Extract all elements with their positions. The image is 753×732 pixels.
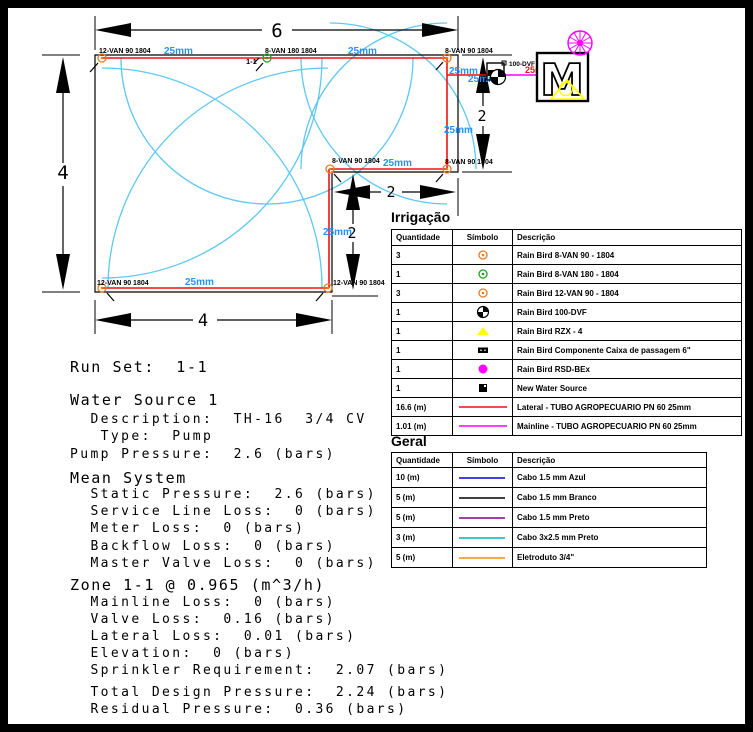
mean-system-heading: Mean System	[70, 469, 187, 487]
table-row: 1 Rain Bird 100-DVF	[392, 303, 741, 322]
nozzle-orange-icon	[453, 284, 513, 302]
svg-text:12-VAN 90 1804: 12-VAN 90 1804	[99, 48, 151, 55]
qty-cell: 3	[392, 246, 453, 264]
report-line: Description: TH-16 3/4 CV	[70, 412, 367, 427]
qty-cell: 5 (m)	[392, 548, 453, 567]
svg-text:25mm: 25mm	[164, 46, 193, 57]
report-line: Mainline Loss: 0 (bars)	[70, 595, 336, 610]
qty-cell: 3 (m)	[392, 528, 453, 547]
water-source-icon	[453, 379, 513, 397]
header-descricao: Descrição	[513, 453, 706, 467]
table-row: 3 (m) Cabo 3x2.5 mm Preto	[392, 528, 706, 548]
qty-cell: 1	[392, 341, 453, 359]
table-row: 1.01 (m) Mainline - TUBO AGROPECUARIO PN…	[392, 417, 741, 435]
dim-height-left: 4	[57, 162, 68, 184]
svg-text:25mm: 25mm	[444, 125, 473, 136]
pass-box-icon	[453, 341, 513, 359]
desc-cell: Rain Bird 100-DVF	[513, 303, 741, 321]
svg-text:25mm: 25mm	[348, 46, 377, 57]
svg-text:12-VAN 90 1804: 12-VAN 90 1804	[333, 280, 385, 287]
svg-text:8-VAN 90 1804: 8-VAN 90 1804	[445, 48, 493, 55]
svg-text:25mm: 25mm	[323, 227, 352, 238]
table-row: 5 (m) Cabo 1.5 mm Preto	[392, 508, 706, 528]
qty-cell: 10 (m)	[392, 468, 453, 487]
dim-height-right: 2	[477, 107, 486, 125]
report-line: Master Valve Loss: 0 (bars)	[70, 556, 377, 571]
nozzle-green-icon	[453, 265, 513, 283]
water-meter-box: M	[537, 53, 588, 106]
table-header-row: Quantidade Símbolo Descrição	[392, 453, 706, 468]
irrigacao-table: Quantidade Símbolo Descrição 3 Rain Bird…	[391, 229, 742, 436]
table-row: 1 Rain Bird RZX - 4	[392, 322, 741, 341]
desc-cell: Rain Bird Componente Caixa de passagem 6…	[513, 341, 741, 359]
desc-cell: Cabo 3x2.5 mm Preto	[513, 528, 706, 547]
nozzle-orange-icon	[453, 246, 513, 264]
cable-blue-line-icon	[453, 468, 513, 487]
qty-cell: 1	[392, 360, 453, 378]
table-row: 10 (m) Cabo 1.5 mm Azul	[392, 468, 706, 488]
header-simbolo: Símbolo	[453, 230, 513, 245]
qty-cell: 16.6 (m)	[392, 398, 453, 416]
table-row: 1 New Water Source	[392, 379, 741, 398]
header-quantidade: Quantidade	[392, 230, 453, 245]
svg-text:8-VAN 180 1804: 8-VAN 180 1804	[265, 48, 317, 55]
desc-cell: Rain Bird RZX - 4	[513, 322, 741, 340]
desc-cell: Lateral - TUBO AGROPECUARIO PN 60 25mm	[513, 398, 741, 416]
table-row: 1 Rain Bird RSD-BEx	[392, 360, 741, 379]
table-row: 3 Rain Bird 8-VAN 90 - 1804	[392, 246, 741, 265]
report-line: Backflow Loss: 0 (bars)	[70, 539, 336, 554]
header-simbolo: Símbolo	[453, 453, 513, 467]
geral-table: Quantidade Símbolo Descrição 10 (m) Cabo…	[391, 452, 707, 568]
desc-cell: Mainline - TUBO AGROPECUARIO PN 60 25mm	[513, 417, 741, 435]
svg-text:8-VAN 90 1804: 8-VAN 90 1804	[332, 158, 380, 165]
svg-text:25mm: 25mm	[383, 158, 412, 169]
cable-cyan-line-icon	[453, 528, 513, 547]
qty-cell: 5 (m)	[392, 508, 453, 527]
irrigacao-table-title: Irrigação	[391, 209, 450, 225]
report-line: Static Pressure: 2.6 (bars)	[70, 487, 377, 502]
qty-cell: 1	[392, 265, 453, 283]
report-line: Service Line Loss: 0 (bars)	[70, 504, 377, 519]
drawing-sheet: 6 4 4 2 2 2	[0, 0, 753, 732]
controller-triangle-icon	[453, 322, 513, 340]
qty-cell: 1	[392, 379, 453, 397]
table-row: 3 Rain Bird 12-VAN 90 - 1804	[392, 284, 741, 303]
report-line: Residual Pressure: 0.36 (bars)	[70, 702, 407, 717]
table-header-row: Quantidade Símbolo Descrição	[392, 230, 741, 246]
rain-sensor-icon	[568, 31, 592, 55]
table-row: 5 (m) Eletroduto 3/4"	[392, 548, 706, 567]
table-row: 5 (m) Cabo 1.5 mm Branco	[392, 488, 706, 508]
dim-notch-width: 2	[386, 183, 395, 201]
svg-text:8-VAN 90 1804: 8-VAN 90 1804	[445, 159, 493, 166]
desc-cell: Cabo 1.5 mm Azul	[513, 468, 706, 487]
table-row: 1 Rain Bird Componente Caixa de passagem…	[392, 341, 741, 360]
water-source-heading: Water Source 1	[70, 391, 219, 409]
desc-cell: Cabo 1.5 mm Branco	[513, 488, 706, 507]
svg-text:12-VAN 90 1804: 12-VAN 90 1804	[97, 280, 149, 287]
report-line: Meter Loss: 0 (bars)	[70, 521, 305, 536]
mainline-line-icon	[453, 417, 513, 435]
valve-label: 100-DVF	[509, 61, 535, 68]
desc-cell: Rain Bird 8-VAN 90 - 1804	[513, 246, 741, 264]
zone-callout: 1-1	[246, 57, 257, 66]
table-row: 1 Rain Bird 8-VAN 180 - 1804	[392, 265, 741, 284]
cable-purple-line-icon	[453, 508, 513, 527]
dim-width-bottom: 4	[198, 311, 208, 331]
valve-dvf-icon	[453, 303, 513, 321]
valve-dvf-icon	[491, 70, 506, 85]
qty-cell: 1	[392, 322, 453, 340]
desc-cell: Cabo 1.5 mm Preto	[513, 508, 706, 527]
desc-cell: Rain Bird RSD-BEx	[513, 360, 741, 378]
report-line: Elevation: 0 (bars)	[70, 646, 295, 661]
qty-cell: 1	[392, 303, 453, 321]
cable-white-line-icon	[453, 488, 513, 507]
qty-cell: 3	[392, 284, 453, 302]
report-line: Valve Loss: 0.16 (bars)	[70, 612, 336, 627]
qty-cell: 5 (m)	[392, 488, 453, 507]
desc-cell: New Water Source	[513, 379, 741, 397]
rain-sensor-icon	[453, 360, 513, 378]
desc-cell: Rain Bird 8-VAN 180 - 1804	[513, 265, 741, 283]
run-set-line: Run Set: 1-1	[70, 358, 208, 376]
report-line: Type: Pump	[70, 429, 213, 444]
desc-cell: Eletroduto 3/4"	[513, 548, 706, 567]
desc-cell: Rain Bird 12-VAN 90 - 1804	[513, 284, 741, 302]
lateral-line-icon	[453, 398, 513, 416]
report-line: Total Design Pressure: 2.24 (bars)	[70, 685, 448, 700]
dim-width-top: 6	[271, 20, 282, 42]
report-line: Pump Pressure: 2.6 (bars)	[70, 447, 336, 462]
header-quantidade: Quantidade	[392, 453, 453, 467]
geral-table-title: Geral	[391, 433, 427, 449]
zone-heading: Zone 1-1 @ 0.965 (m^3/h)	[70, 576, 325, 594]
eletroduto-line-icon	[453, 548, 513, 567]
table-row: 16.6 (m) Lateral - TUBO AGROPECUARIO PN …	[392, 398, 741, 417]
header-descricao: Descrição	[513, 230, 741, 245]
svg-text:25mm: 25mm	[185, 277, 214, 288]
report-line: Lateral Loss: 0.01 (bars)	[70, 629, 356, 644]
report-line: Sprinkler Requirement: 2.07 (bars)	[70, 663, 448, 678]
